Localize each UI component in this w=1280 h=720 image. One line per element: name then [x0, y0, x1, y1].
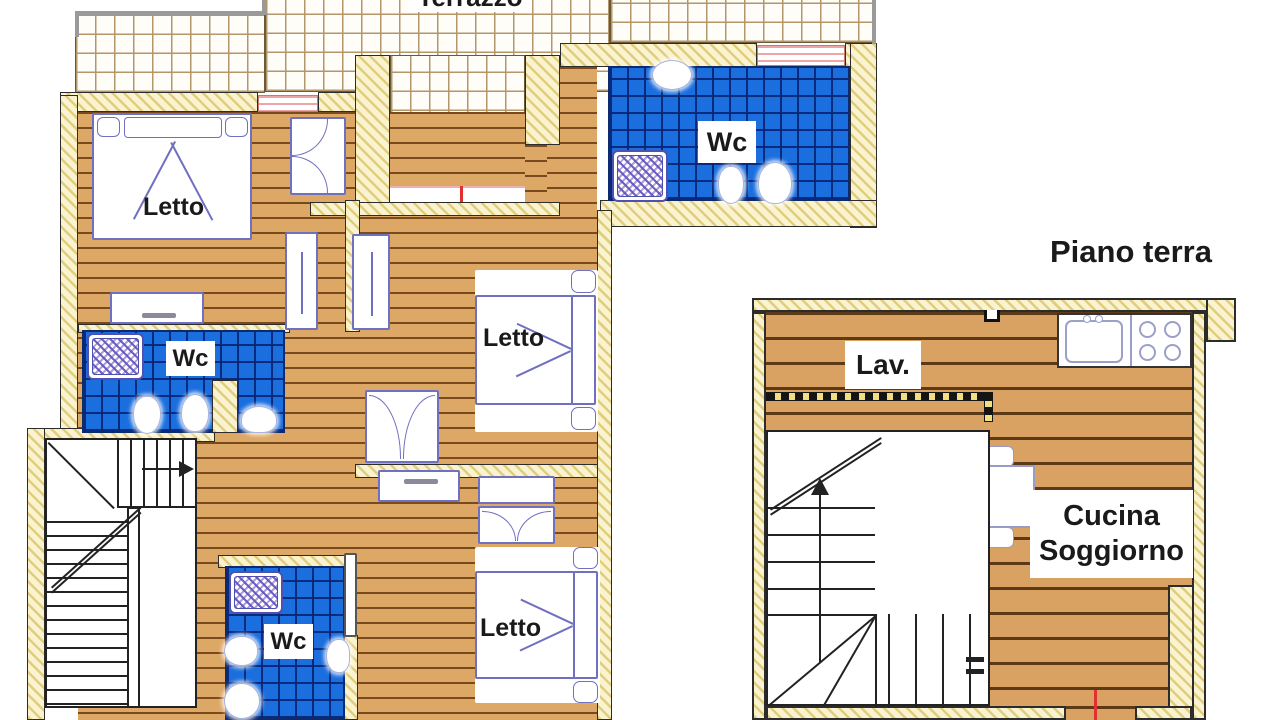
bathroom-3-label: Wc — [264, 624, 313, 659]
staircase — [766, 430, 990, 706]
terrace-railing — [262, 0, 266, 13]
toilet — [718, 166, 744, 204]
bathroom-3-door — [344, 553, 357, 637]
toilet — [133, 396, 161, 434]
window — [757, 45, 845, 66]
bedroom-2-label-text: Letto — [483, 324, 544, 352]
stair-tread — [915, 614, 917, 708]
stair-direction-line — [142, 468, 180, 470]
desk — [378, 470, 460, 502]
stair-tread — [47, 703, 127, 705]
wardrobe — [478, 506, 555, 544]
wardrobe — [365, 390, 439, 463]
kitchen-sink — [1065, 320, 1123, 363]
stair-tread — [47, 619, 127, 621]
tall-cabinet — [285, 232, 318, 330]
stair-tread — [47, 563, 127, 565]
bed-pillow — [97, 117, 120, 137]
cabinet-handle — [371, 252, 373, 316]
wall — [1168, 585, 1194, 715]
stair-winder-line — [823, 614, 877, 706]
terrace-railing — [872, 0, 876, 44]
faucet-icon — [1083, 315, 1091, 323]
desk-handle — [404, 479, 438, 484]
kitchen-counter — [1057, 313, 1192, 368]
stair-tread — [768, 507, 875, 509]
wardrobe-door — [403, 395, 435, 458]
wall — [1192, 312, 1206, 720]
wardrobe-door — [292, 119, 328, 156]
cabinet-handle — [301, 252, 303, 314]
floor-plan-drawing: Wc Wc Wc Letto Letto — [0, 0, 1280, 720]
laundry-label-text: Lav. — [856, 351, 910, 379]
terrace-railing — [75, 11, 79, 37]
sink — [241, 406, 277, 433]
bidet — [181, 394, 209, 432]
kitchen-living-label-line1: Cucina — [1063, 502, 1160, 531]
wardrobe-door — [292, 156, 328, 193]
door-marker — [1094, 690, 1097, 720]
stair-tread — [888, 614, 890, 708]
terrace-label: Terrazzo — [408, 0, 532, 12]
bathroom-2-label-text: Wc — [173, 347, 209, 371]
stair-tread — [47, 647, 127, 649]
stair-tread — [47, 689, 127, 691]
ground-door-opening-floor — [1060, 706, 1136, 720]
dresser — [110, 292, 204, 324]
stair-winder-line — [48, 442, 115, 509]
wall — [60, 95, 78, 433]
stove-burner — [1164, 321, 1181, 338]
bathroom-1-label-text: Wc — [707, 129, 748, 156]
shower-pattern — [234, 576, 278, 609]
terrace-tiles-left — [75, 13, 265, 93]
kitchen-living-label-line2: Soggiorno — [1039, 537, 1184, 566]
stair-tread — [169, 440, 171, 507]
bathroom-1-label: Wc — [698, 121, 756, 163]
shower-tray — [612, 150, 668, 202]
wall — [1206, 298, 1236, 342]
partition-wall — [984, 392, 993, 422]
bed-pillow — [571, 270, 596, 293]
wall — [600, 200, 877, 227]
wall — [355, 55, 390, 203]
stove-burner — [1164, 344, 1181, 361]
stair-tread — [117, 440, 119, 507]
stove-burner — [1139, 321, 1156, 338]
desk — [478, 476, 555, 504]
stair-tread — [143, 440, 145, 507]
stair-tread — [47, 661, 127, 663]
wall — [318, 92, 360, 112]
bedroom-3-label-text: Letto — [480, 614, 541, 642]
bedroom-3-label: Letto — [480, 616, 555, 642]
door-jamb — [984, 310, 1000, 322]
terrace-door-threshold — [390, 186, 525, 202]
stair-direction-arrow — [811, 478, 829, 495]
wall — [766, 706, 1066, 720]
section-cut-mark — [966, 669, 984, 674]
toilet — [224, 636, 258, 666]
stair-tread — [942, 614, 944, 708]
stair-railing — [770, 437, 882, 511]
stair-tread — [47, 521, 127, 523]
stair-tread — [47, 605, 127, 607]
bidet — [224, 683, 260, 719]
partition-wall — [766, 392, 988, 401]
bathroom-2-label: Wc — [166, 341, 215, 376]
kitchen-living-label: Cucina Soggiorno — [1030, 490, 1193, 578]
stair-tread — [47, 675, 127, 677]
wall — [525, 55, 560, 145]
wall — [752, 312, 766, 720]
faucet-icon — [1095, 315, 1103, 323]
wood-floor-strip-2 — [525, 145, 547, 205]
counter-divider — [1130, 315, 1132, 366]
bed-headboard — [571, 295, 596, 405]
shower-pattern — [617, 155, 663, 197]
bathroom-3-label-text: Wc — [271, 630, 307, 654]
bed-headboard — [573, 571, 598, 679]
stair-divider — [127, 507, 140, 708]
wall — [1135, 706, 1192, 720]
laundry-label: Lav. — [845, 341, 921, 389]
ground-floor-title: Piano terra — [1050, 235, 1245, 275]
bedroom-1-label: Letto — [143, 195, 218, 221]
sink — [326, 639, 350, 673]
bidet — [758, 162, 792, 204]
section-cut-mark — [966, 657, 984, 662]
stair-tread — [156, 440, 158, 507]
terrace-tiles-right — [610, 0, 875, 43]
wardrobe — [290, 117, 346, 195]
stove-burner — [1139, 344, 1156, 361]
terrace-railing — [75, 11, 267, 15]
stair-tread — [47, 591, 127, 593]
shower-tray — [229, 571, 283, 614]
sink — [652, 60, 692, 90]
stair-tread — [768, 588, 875, 590]
wall — [27, 428, 45, 720]
terrace-label-text: Terrazzo — [418, 0, 523, 10]
shower-tray — [87, 333, 144, 380]
ground-floor-title-text: Piano terra — [1050, 234, 1212, 269]
bed-pillow — [573, 681, 598, 703]
shower-pattern — [92, 338, 139, 375]
window — [258, 95, 318, 112]
stair-tread — [768, 561, 875, 563]
stair-tread — [130, 440, 132, 507]
stair-direction-arrow — [179, 461, 194, 477]
stair-line — [875, 614, 877, 708]
stair-tread — [47, 549, 127, 551]
wardrobe-door — [369, 395, 401, 458]
tall-cabinet — [352, 234, 390, 330]
stair-tread — [47, 633, 127, 635]
stair-tread — [768, 534, 875, 536]
wall — [60, 92, 258, 112]
stair-tread — [768, 614, 875, 616]
wardrobe-door — [482, 511, 516, 541]
bed-pillow — [571, 407, 596, 430]
bedroom-1-label-text: Letto — [143, 193, 204, 221]
staircase — [45, 438, 197, 708]
wardrobe-door — [517, 511, 551, 541]
bed-headboard — [124, 117, 222, 138]
dresser-handle — [142, 313, 176, 318]
stair-winder-line — [768, 615, 877, 707]
wall — [212, 380, 238, 433]
bedroom-2-label: Letto — [483, 326, 558, 352]
terrace-door-marker — [460, 186, 463, 202]
bed-pillow — [225, 117, 248, 137]
bed-pillow — [573, 547, 598, 569]
stair-direction-line — [819, 494, 821, 662]
